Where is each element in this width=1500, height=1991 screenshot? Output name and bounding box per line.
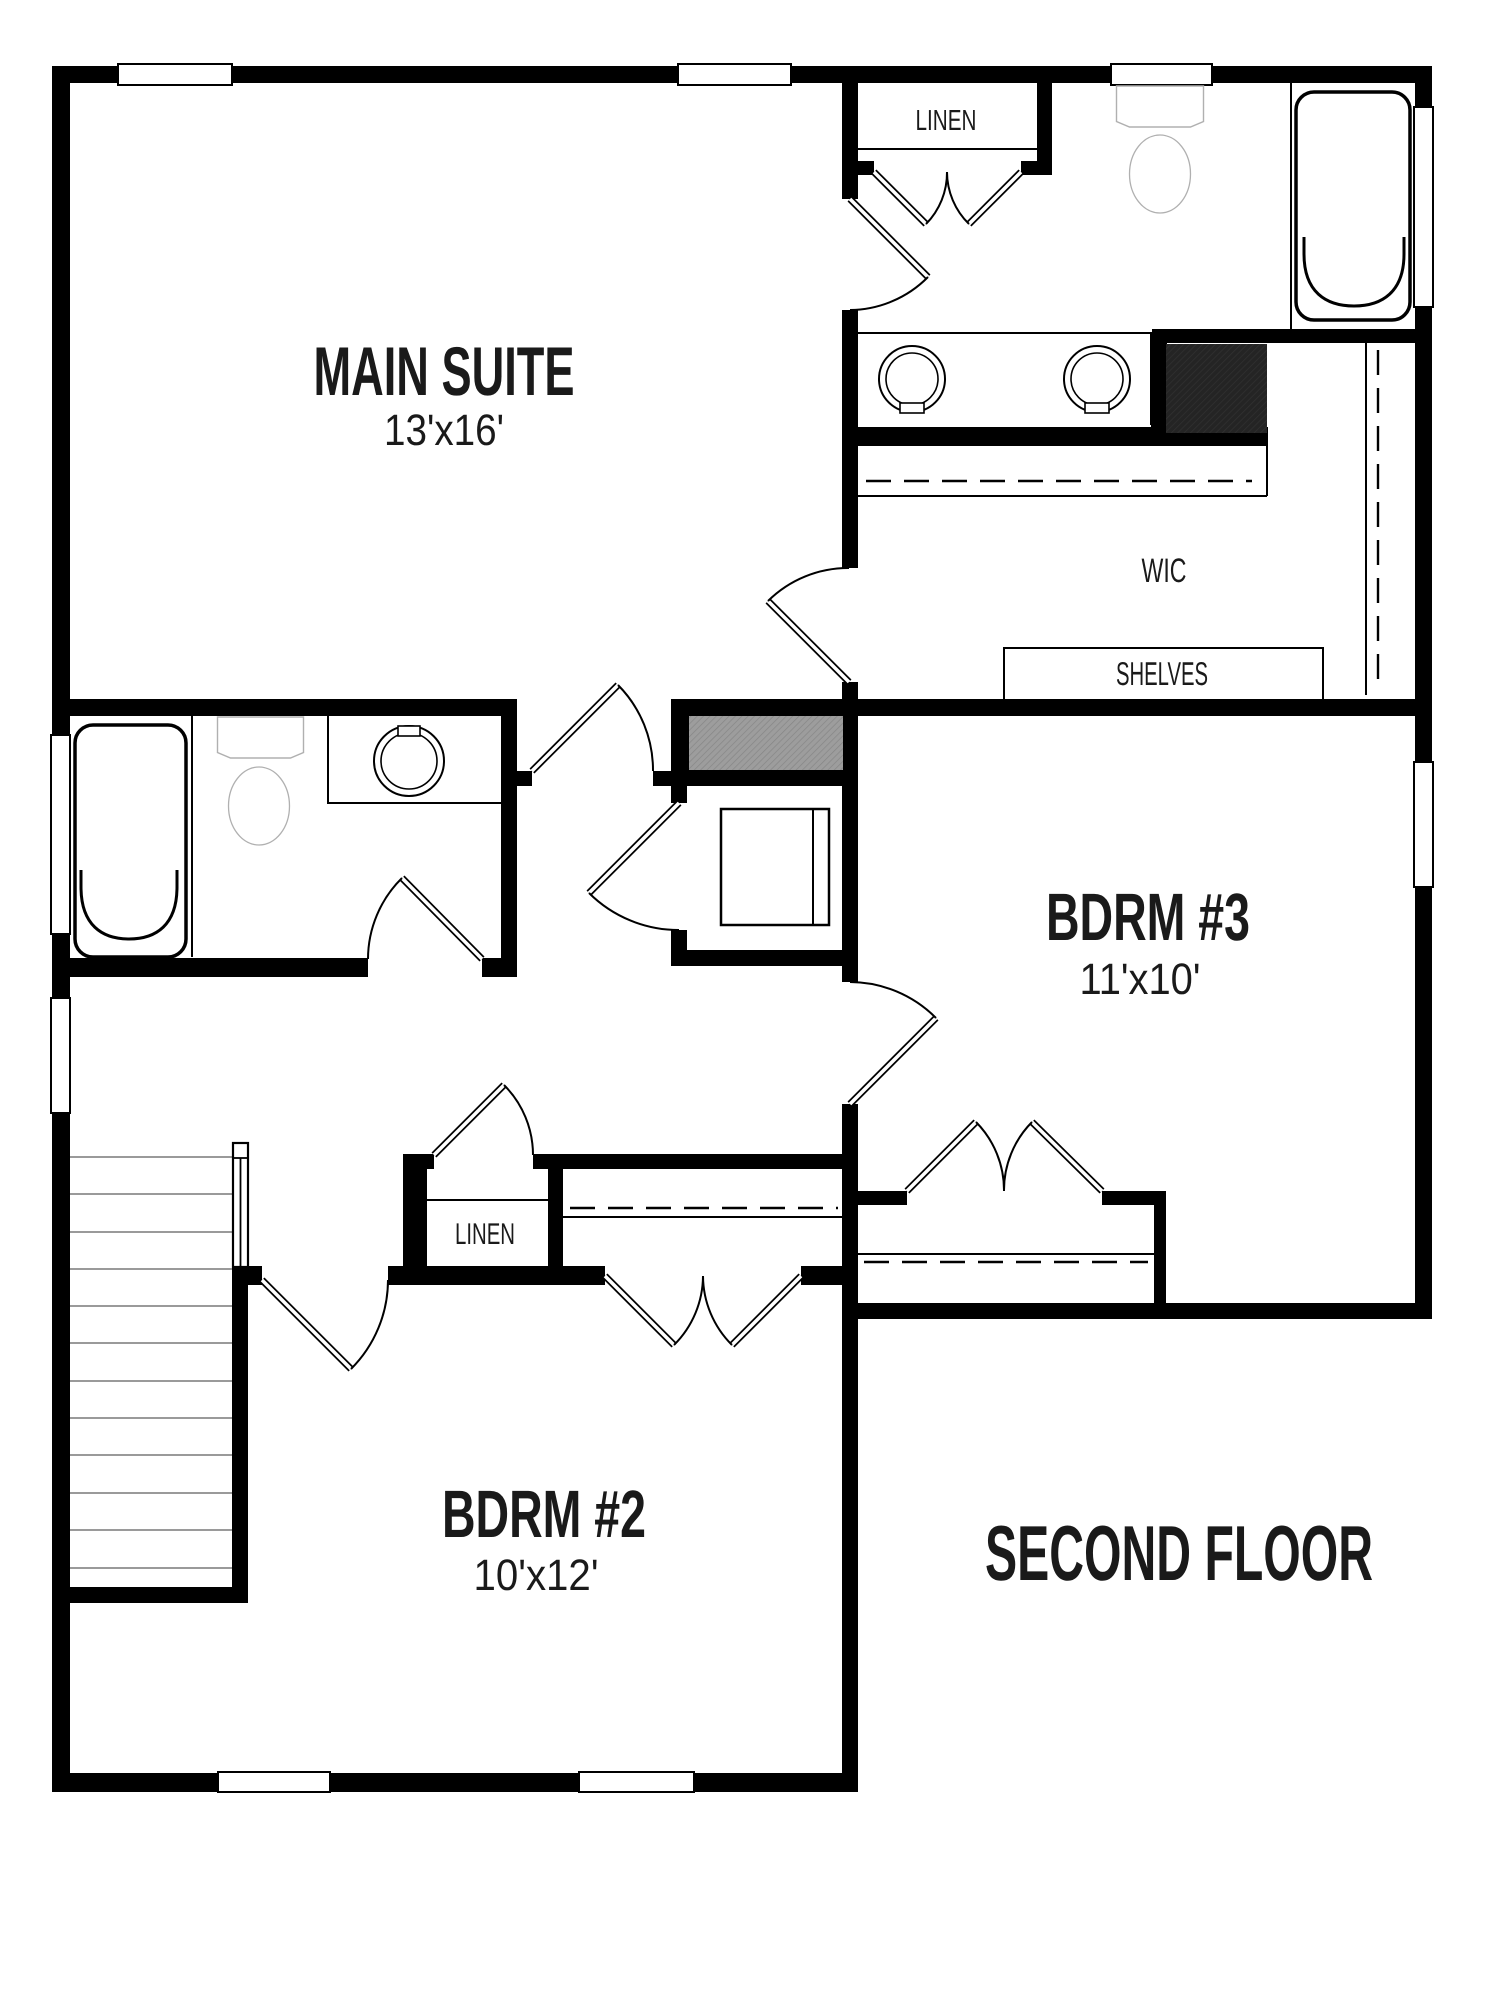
svg-text:LINEN: LINEN — [916, 105, 977, 137]
svg-text:SHELVES: SHELVES — [1116, 655, 1208, 692]
svg-text:MAIN SUITE: MAIN SUITE — [314, 333, 575, 410]
svg-text:11'x10': 11'x10' — [1080, 955, 1201, 1004]
svg-text:13'x16': 13'x16' — [384, 406, 504, 455]
svg-text:10'x12': 10'x12' — [474, 1551, 599, 1600]
svg-text:BDRM #2: BDRM #2 — [442, 1477, 646, 1552]
svg-text:LINEN: LINEN — [455, 1218, 515, 1251]
svg-text:SECOND FLOOR: SECOND FLOOR — [985, 1509, 1373, 1597]
svg-text:BDRM #3: BDRM #3 — [1046, 880, 1250, 955]
svg-text:WIC: WIC — [1142, 552, 1187, 590]
